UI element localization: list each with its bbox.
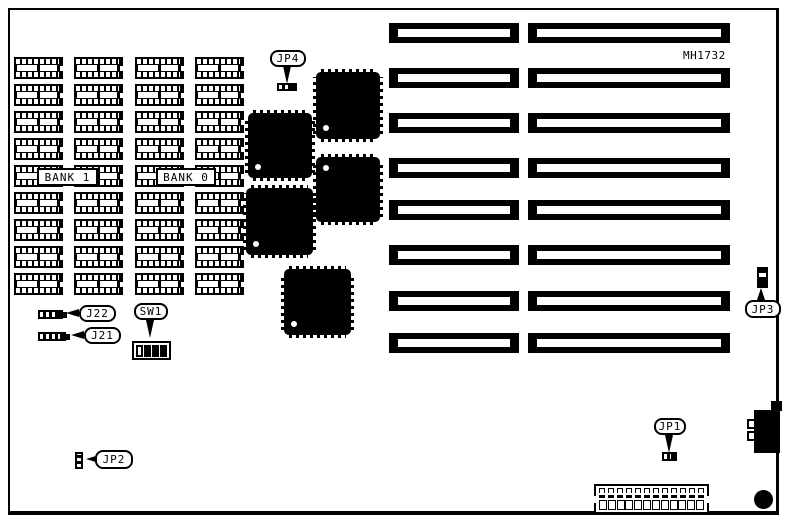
memory-chip [74,192,123,214]
memory-chip [135,57,184,79]
pin1-dot [253,241,259,247]
qfp-chip-2 [248,113,312,178]
sw1-switch-open [136,345,143,357]
bank1-label: BANK 1 [37,168,98,186]
sw1-dip-switch [132,341,171,360]
qfp-chip-3 [316,157,380,222]
j22-pointer [66,309,79,317]
pin1-dot [323,165,329,171]
memory-chip [74,246,123,268]
memory-chip [14,246,63,268]
memory-chip [135,138,184,160]
pin1-dot [255,164,261,170]
memory-chip [74,273,123,295]
jp1-label: JP1 [654,418,686,435]
power-connector-dashes [599,495,704,498]
sw1-label: SW1 [134,303,168,320]
sw1-pointer [146,320,154,338]
jp3-label: JP3 [745,300,781,318]
memory-chip [14,111,63,133]
expansion-slot [389,158,519,178]
jp2-connector [75,452,83,469]
expansion-slot [389,200,519,220]
memory-chip [74,111,123,133]
jp4-pointer [283,66,291,84]
j21-label: J21 [84,327,121,344]
j22-connector [38,310,63,319]
memory-chip [74,138,123,160]
motherboard-diagram: BANK 1 BANK 0 JP4 J22 J21 SW1 JP2 JP3 JP… [0,0,791,527]
memory-chip [14,192,63,214]
memory-chip [195,111,244,133]
memory-chip [195,246,244,268]
expansion-slot [389,333,519,353]
memory-chip [195,219,244,241]
memory-chip [195,192,244,214]
j21-pointer [71,331,84,339]
expansion-slot [528,291,730,311]
jp2-label: JP2 [95,450,133,469]
expansion-slot [389,68,519,88]
expansion-slot [528,200,730,220]
expansion-slot [389,245,519,265]
qfp-chip-4 [246,188,313,255]
expansion-slot [528,113,730,133]
keyboard-connector-tab-2 [747,431,756,441]
memory-chip [74,57,123,79]
memory-chip [195,84,244,106]
jp1-jumper [662,452,677,461]
sw1-switch-closed [144,345,151,357]
expansion-slot [389,113,519,133]
memory-chip [135,84,184,106]
qfp-chip-1 [316,72,380,139]
jp4-label: JP4 [270,50,306,67]
expansion-slot [389,291,519,311]
qfp-chip-5 [284,269,351,335]
battery [754,490,773,509]
expansion-slot [528,68,730,88]
expansion-slot [528,158,730,178]
memory-chip [74,219,123,241]
memory-chip [14,84,63,106]
memory-chip [195,138,244,160]
memory-chip [14,273,63,295]
j21-connector [38,332,66,341]
jp4-jumper [277,83,297,91]
pin1-dot [291,321,297,327]
jp1-pointer [665,435,673,453]
expansion-slot [528,23,730,43]
memory-chip [14,219,63,241]
jp3-pointer [757,288,765,300]
keyboard-connector-tab-1 [747,419,756,429]
power-connector [594,484,709,514]
memory-chip [135,219,184,241]
memory-chip [195,57,244,79]
memory-chip [14,138,63,160]
memory-chip [135,246,184,268]
expansion-slot [528,333,730,353]
memory-chip [135,192,184,214]
board-code: MH1732 [683,49,726,62]
memory-chip [14,57,63,79]
memory-chip [195,273,244,295]
jp3-jumper [757,267,768,288]
sw1-switch-closed [152,345,159,357]
memory-chip [135,273,184,295]
pin1-dot [323,125,329,131]
memory-chip [135,111,184,133]
keyboard-connector [754,410,780,453]
memory-chip [74,84,123,106]
keyboard-connector-step [771,401,782,411]
expansion-slot [528,245,730,265]
j22-label: J22 [79,305,116,322]
expansion-slot [389,23,519,43]
bank0-label: BANK 0 [156,168,216,186]
sw1-switch-closed [160,345,167,357]
